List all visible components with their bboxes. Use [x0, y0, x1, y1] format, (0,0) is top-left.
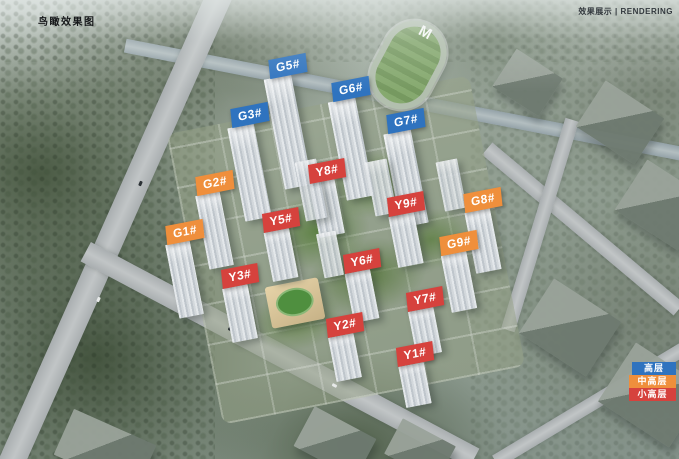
sales-center-lawn	[273, 285, 316, 320]
legend-item-high-rise: 高层	[632, 362, 676, 375]
aerial-rendering: M G5# G6# G3# G7# G2# G1# G8# G9# Y8# Y9…	[0, 0, 679, 459]
view-title: 鸟瞰效果图	[38, 13, 96, 28]
corner-caption: 效果展示 | RENDERING	[578, 6, 673, 17]
legend-item-mid-high-rise: 中高层	[629, 375, 676, 388]
legend-item-small-high-rise: 小高层	[629, 388, 676, 401]
legend: 高层 中高层 小高层	[629, 362, 676, 401]
